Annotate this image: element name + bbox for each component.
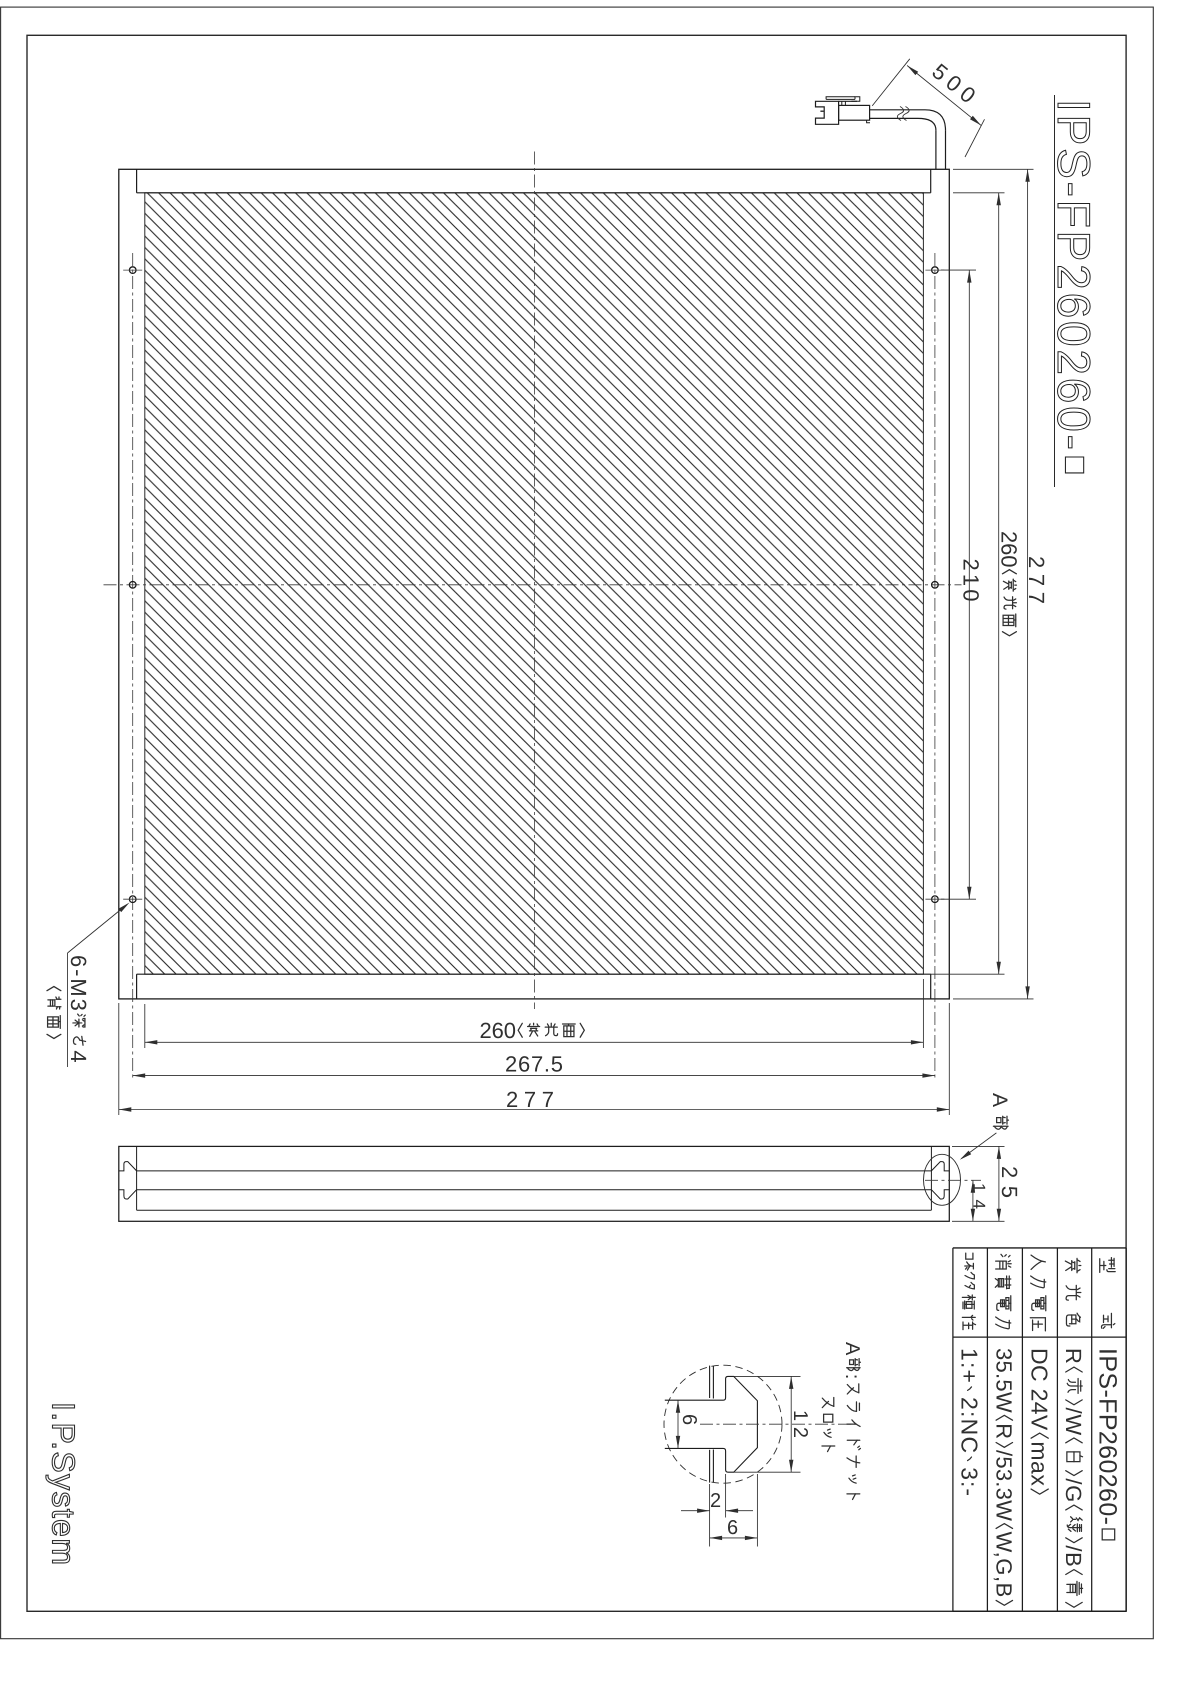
svg-text:A: A	[988, 1093, 1011, 1107]
svg-text:/B: /B	[1061, 1545, 1086, 1566]
svg-text:35.5W: 35.5W	[991, 1348, 1016, 1413]
svg-text:R: R	[991, 1423, 1016, 1439]
svg-text:260: 260	[997, 531, 1022, 567]
svg-text:6-M3: 6-M3	[66, 955, 91, 1011]
svg-text:4: 4	[66, 1050, 91, 1062]
svg-text:267.5: 267.5	[505, 1052, 563, 1077]
svg-text:6: 6	[678, 1414, 700, 1425]
svg-text:277: 277	[506, 1087, 554, 1112]
svg-text:3:-: 3:-	[957, 1467, 983, 1496]
svg-text:DC 24V: DC 24V	[1026, 1348, 1052, 1431]
svg-text:R: R	[1061, 1348, 1086, 1364]
svg-text:/53.3W: /53.3W	[991, 1450, 1016, 1521]
svg-text::: :	[841, 1374, 863, 1380]
svg-text:IPS-FP260260-: IPS-FP260260-	[1093, 1348, 1121, 1525]
svg-text:max: max	[1026, 1441, 1052, 1486]
svg-text:I.P.System: I.P.System	[46, 1402, 82, 1565]
svg-text:/G: /G	[1061, 1478, 1086, 1502]
svg-text:A: A	[841, 1342, 863, 1356]
svg-text:/W: /W	[1061, 1408, 1086, 1436]
svg-text:210: 210	[959, 559, 984, 602]
svg-text:2: 2	[710, 1490, 721, 1512]
svg-text:2:NC: 2:NC	[957, 1397, 983, 1453]
svg-text:1:+: 1:+	[957, 1348, 983, 1383]
svg-text:260: 260	[480, 1018, 516, 1043]
svg-text:6: 6	[727, 1517, 738, 1539]
svg-text:IPS-FP260260-: IPS-FP260260-	[1048, 99, 1100, 450]
svg-text:277: 277	[1024, 556, 1049, 604]
svg-text:W,G,B: W,G,B	[991, 1532, 1016, 1598]
